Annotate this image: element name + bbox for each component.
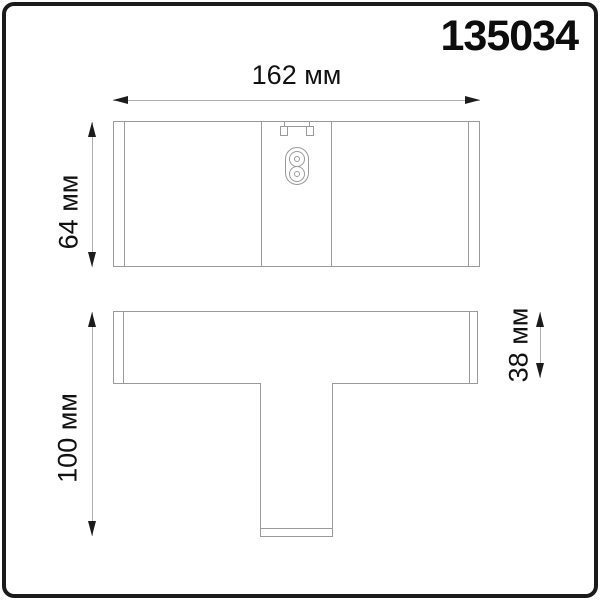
module-divider-left (261, 121, 262, 267)
dimension-drawing-page: 135034 162 мм 64 (0, 0, 600, 600)
arrow-up-icon (88, 312, 96, 327)
flange-bottom-right (332, 383, 478, 384)
arrow-left-icon (113, 96, 128, 104)
flange-endcap-right (469, 311, 470, 384)
dim-height-label: 64 мм (54, 175, 85, 250)
product-id: 135034 (441, 12, 579, 61)
dim-width-line (113, 100, 480, 101)
dim-flange-label: 38 мм (504, 308, 535, 383)
dim-height-line (92, 122, 93, 267)
arrow-up-icon (536, 312, 544, 327)
arrow-up-icon (88, 122, 96, 137)
dim-profile-height-line (92, 312, 93, 536)
fixture-body-outline (113, 121, 480, 267)
stem-endcap-line (260, 528, 333, 529)
dim-width-label: 162 мм (113, 60, 480, 91)
dim-profile-height-label: 100 мм (53, 393, 84, 483)
stem-outline (260, 383, 333, 537)
right-endcap-line (468, 121, 469, 267)
arrow-down-icon (536, 363, 544, 378)
flange-endcap-left (123, 311, 124, 384)
arrow-right-icon (465, 96, 480, 104)
flange-bottom-left (113, 383, 261, 384)
module-divider-right (331, 121, 332, 267)
arrow-down-icon (88, 521, 96, 536)
flange-outline (113, 311, 478, 384)
left-endcap-line (124, 121, 125, 267)
arrow-down-icon (88, 252, 96, 267)
